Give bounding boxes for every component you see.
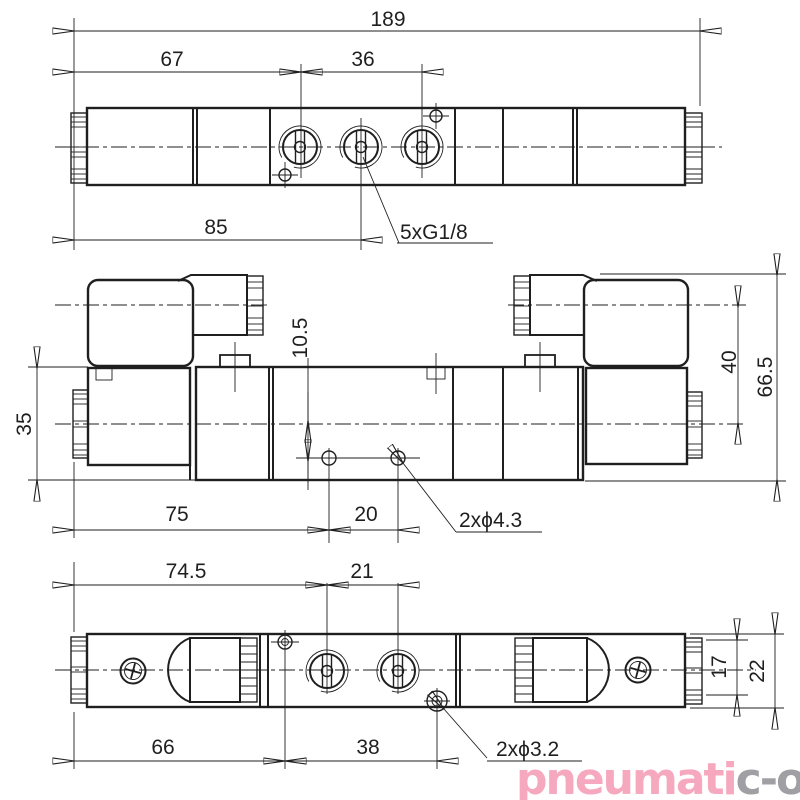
right-rib-column	[515, 638, 533, 702]
valve-body-bottom	[87, 634, 685, 707]
left-coil-notch	[96, 368, 112, 380]
dim-text-189: 189	[370, 8, 405, 31]
logo-gray-part: c-o	[736, 754, 800, 800]
dim-text-35: 35	[13, 412, 36, 435]
top-view: 189 67 36 85 5xG1/8	[55, 8, 722, 250]
dim-text-67: 67	[160, 48, 183, 71]
dim-text-66: 66	[151, 736, 174, 759]
port-thread-label: 5xG1/8	[400, 221, 468, 244]
body-section-lines	[193, 108, 577, 185]
dim-text-21: 21	[350, 560, 373, 583]
right-override-knurl	[687, 392, 702, 458]
dim-10-5: 10.5	[289, 318, 312, 490]
dim-35: 35	[13, 367, 196, 480]
dim-text-66-5: 66.5	[754, 357, 777, 398]
dim-text-10-5: 10.5	[289, 318, 312, 359]
dim-text-36: 36	[351, 48, 374, 71]
logo-pink-part: pneumati	[516, 754, 736, 800]
front-section-lines	[269, 367, 583, 480]
right-screw	[626, 658, 651, 683]
right-coil	[584, 280, 688, 366]
valve-drawing-page: 189 67 36 85 5xG1/8	[0, 0, 800, 800]
valve-body-front	[196, 367, 583, 480]
dim-text-85: 85	[204, 216, 227, 239]
dim-text-74-5: 74.5	[166, 560, 207, 583]
dim-text-38: 38	[356, 736, 379, 759]
right-coil-block	[586, 368, 702, 464]
dim-17: 17	[706, 640, 748, 695]
brand-logo: pneumatic-o®	[516, 754, 800, 800]
dim-text-40: 40	[718, 350, 741, 373]
bottom-section-lines	[260, 634, 460, 707]
dim-40: 40	[718, 307, 741, 423]
dim-text-17: 17	[708, 655, 731, 678]
port-thread-callout: 5xG1/8	[363, 157, 493, 244]
logo-text: pneumatic-o®	[516, 754, 800, 800]
dim-75-20: 75 20	[74, 462, 398, 538]
dim-text-75: 75	[165, 503, 188, 526]
valve-technical-drawing: 189 67 36 85 5xG1/8	[0, 0, 800, 800]
left-screw	[121, 659, 146, 684]
left-coil	[88, 280, 193, 366]
right-end-cap	[685, 113, 702, 183]
mount-hole-callout: 2xϕ4.3	[403, 463, 542, 532]
dim-text-22: 22	[746, 659, 769, 682]
dim-text-20: 20	[354, 503, 377, 526]
bottom-view: 74.5 21 66 38 17 22 2xϕ3.2	[55, 560, 784, 769]
left-rib-column	[240, 638, 257, 702]
right-end-cap-bottom	[685, 638, 702, 704]
mount-holes	[296, 448, 420, 543]
front-view: 35 10.5 40 66.5 75 20	[13, 274, 786, 543]
valve-body-top	[87, 108, 685, 185]
left-coil-block	[73, 367, 196, 480]
left-end-cap	[71, 113, 87, 183]
mount-hole-label: 2xϕ4.3	[459, 509, 522, 532]
